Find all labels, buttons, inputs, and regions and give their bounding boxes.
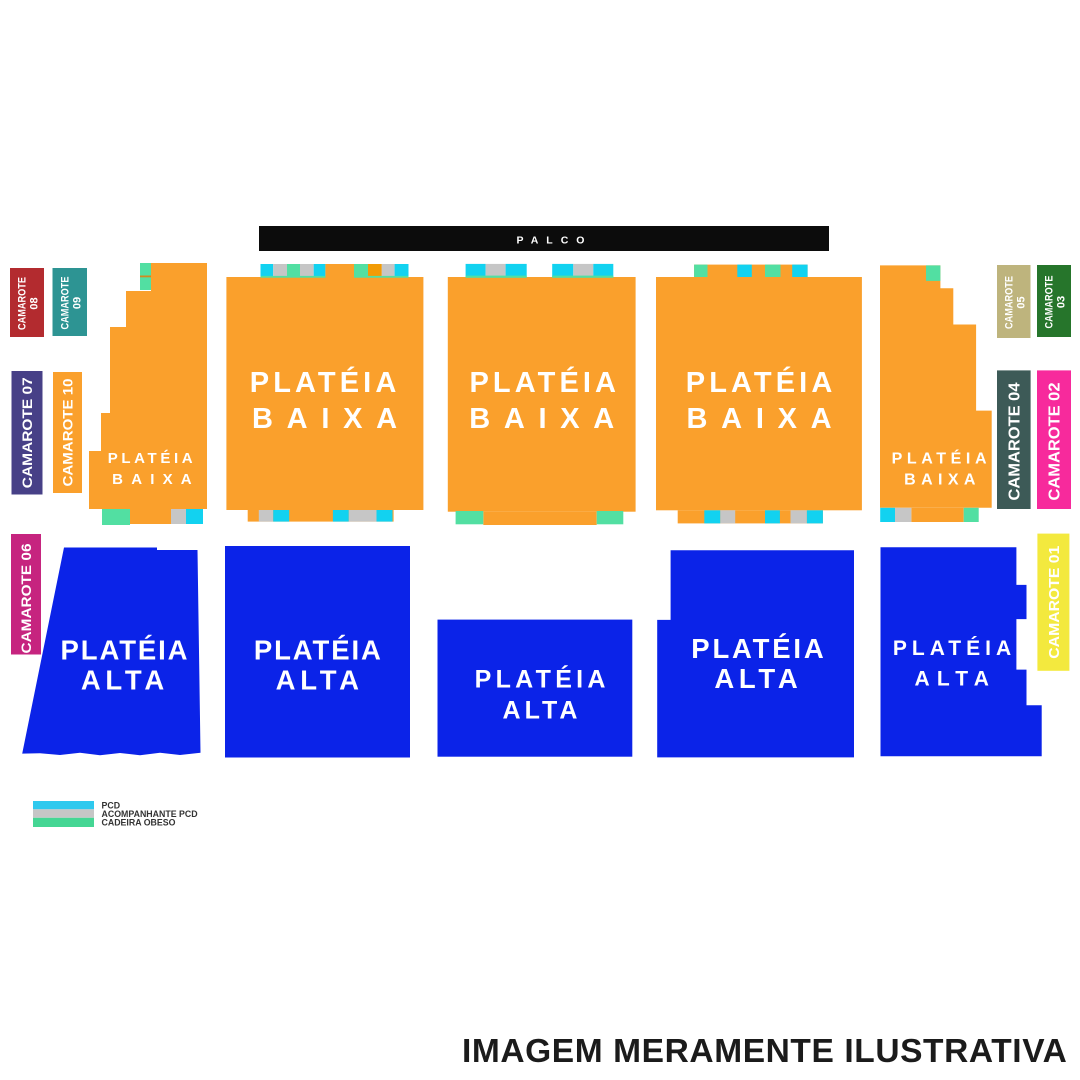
svg-text:BAIXA: BAIXA xyxy=(904,472,981,489)
svg-text:PLATÉIA: PLATÉIA xyxy=(250,365,401,399)
svg-text:CAMAROTE: CAMAROTE xyxy=(17,277,29,330)
svg-text:CAMAROTE 10: CAMAROTE 10 xyxy=(60,378,76,486)
svg-text:PLATÉIA: PLATÉIA xyxy=(469,365,620,399)
svg-text:CAMAROTE 06: CAMAROTE 06 xyxy=(18,543,34,653)
svg-text:05: 05 xyxy=(1015,296,1027,308)
svg-text:CADEIRA OBESO: CADEIRA OBESO xyxy=(102,817,176,827)
svg-text:CAMAROTE 04: CAMAROTE 04 xyxy=(1006,382,1023,500)
svg-text:CAMAROTE: CAMAROTE xyxy=(1003,276,1015,329)
svg-text:PALCO: PALCO xyxy=(517,235,593,247)
svg-text:ALTA: ALTA xyxy=(914,667,996,690)
svg-text:ALTA: ALTA xyxy=(503,697,582,725)
svg-text:PLATÉIA: PLATÉIA xyxy=(254,635,383,666)
svg-text:BAIXA: BAIXA xyxy=(112,471,200,488)
svg-text:BAIXA: BAIXA xyxy=(687,403,846,435)
svg-text:IMAGEM MERAMENTE ILUSTRATIVA: IMAGEM MERAMENTE ILUSTRATIVA xyxy=(462,1033,1068,1070)
svg-text:ALTA: ALTA xyxy=(81,665,169,696)
svg-text:09: 09 xyxy=(71,297,83,309)
svg-text:CAMAROTE: CAMAROTE xyxy=(1044,276,1056,329)
svg-text:03: 03 xyxy=(1056,296,1068,308)
svg-text:PLATÉIA: PLATÉIA xyxy=(475,665,610,694)
svg-text:PLATÉIA: PLATÉIA xyxy=(686,365,837,399)
svg-text:PLATÉIA: PLATÉIA xyxy=(893,637,1016,660)
svg-text:CAMAROTE: CAMAROTE xyxy=(59,277,71,330)
svg-text:BAIXA: BAIXA xyxy=(252,403,411,435)
svg-text:CAMAROTE 07: CAMAROTE 07 xyxy=(19,377,35,488)
svg-text:CAMAROTE 01: CAMAROTE 01 xyxy=(1046,546,1063,659)
svg-text:BAIXA: BAIXA xyxy=(469,403,628,435)
svg-text:CAMAROTE 02: CAMAROTE 02 xyxy=(1047,383,1064,501)
svg-text:PLATÉIA: PLATÉIA xyxy=(691,633,826,664)
svg-text:ALTA: ALTA xyxy=(714,663,802,694)
svg-text:ALTA: ALTA xyxy=(276,665,364,696)
svg-text:PLATÉIA: PLATÉIA xyxy=(108,450,197,467)
svg-text:08: 08 xyxy=(29,297,41,309)
svg-text:PLATÉIA: PLATÉIA xyxy=(892,449,991,468)
svg-text:PLATÉIA: PLATÉIA xyxy=(61,635,190,666)
